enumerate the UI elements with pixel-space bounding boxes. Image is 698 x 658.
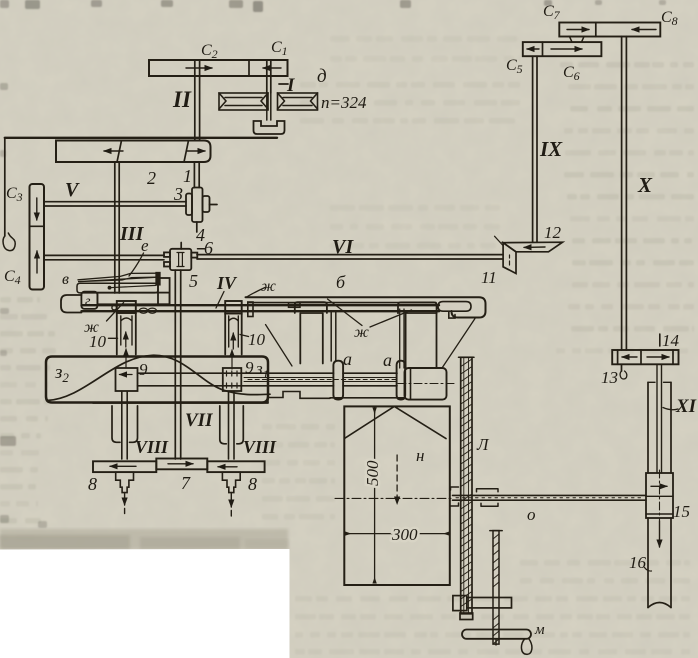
svg-text:б: б [336,272,346,292]
svg-text:1: 1 [183,166,192,186]
svg-text:II: II [172,87,192,112]
svg-text:а: а [383,350,392,370]
svg-text:I: I [286,75,295,96]
svg-text:н: н [416,446,424,465]
svg-text:10: 10 [248,330,266,349]
svg-text:3: 3 [173,184,183,204]
svg-text:VI: VI [332,236,354,258]
svg-text:Л: Л [476,435,490,454]
svg-text:в: в [62,271,69,288]
svg-text:10: 10 [89,332,107,351]
svg-text:8: 8 [88,474,97,494]
svg-text:е: е [141,236,149,255]
svg-text:12: 12 [544,223,562,242]
svg-text:V: V [65,179,80,201]
svg-text:VIII: VIII [243,437,277,457]
svg-text:м: м [534,622,545,638]
svg-text:а: а [343,349,352,369]
svg-text:XI: XI [675,396,697,417]
svg-text:9: 9 [245,358,254,377]
svg-text:IX: IX [539,137,563,161]
svg-text:300: 300 [391,525,418,544]
svg-text:14: 14 [662,331,680,350]
svg-text:VIII: VIII [135,437,169,457]
svg-text:16: 16 [629,553,647,572]
svg-text:2: 2 [147,168,156,188]
svg-text:X: X [637,173,653,197]
svg-text:д: д [317,66,327,87]
svg-text:6: 6 [204,238,213,258]
svg-text:8: 8 [248,474,257,494]
svg-text:IV: IV [216,273,238,293]
svg-text:7: 7 [181,473,191,493]
svg-text:500: 500 [363,460,382,486]
svg-text:VII: VII [185,410,213,431]
svg-text:11: 11 [481,268,497,287]
svg-text:о: о [527,505,536,524]
svg-text:9: 9 [139,360,148,379]
svg-text:15: 15 [673,502,690,521]
svg-text:г: г [85,294,91,309]
svg-text:ж: ж [261,278,276,295]
svg-text:n=324: n=324 [321,93,367,112]
svg-text:5: 5 [189,271,198,291]
svg-text:ж: ж [354,324,369,341]
svg-text:13: 13 [601,368,618,387]
